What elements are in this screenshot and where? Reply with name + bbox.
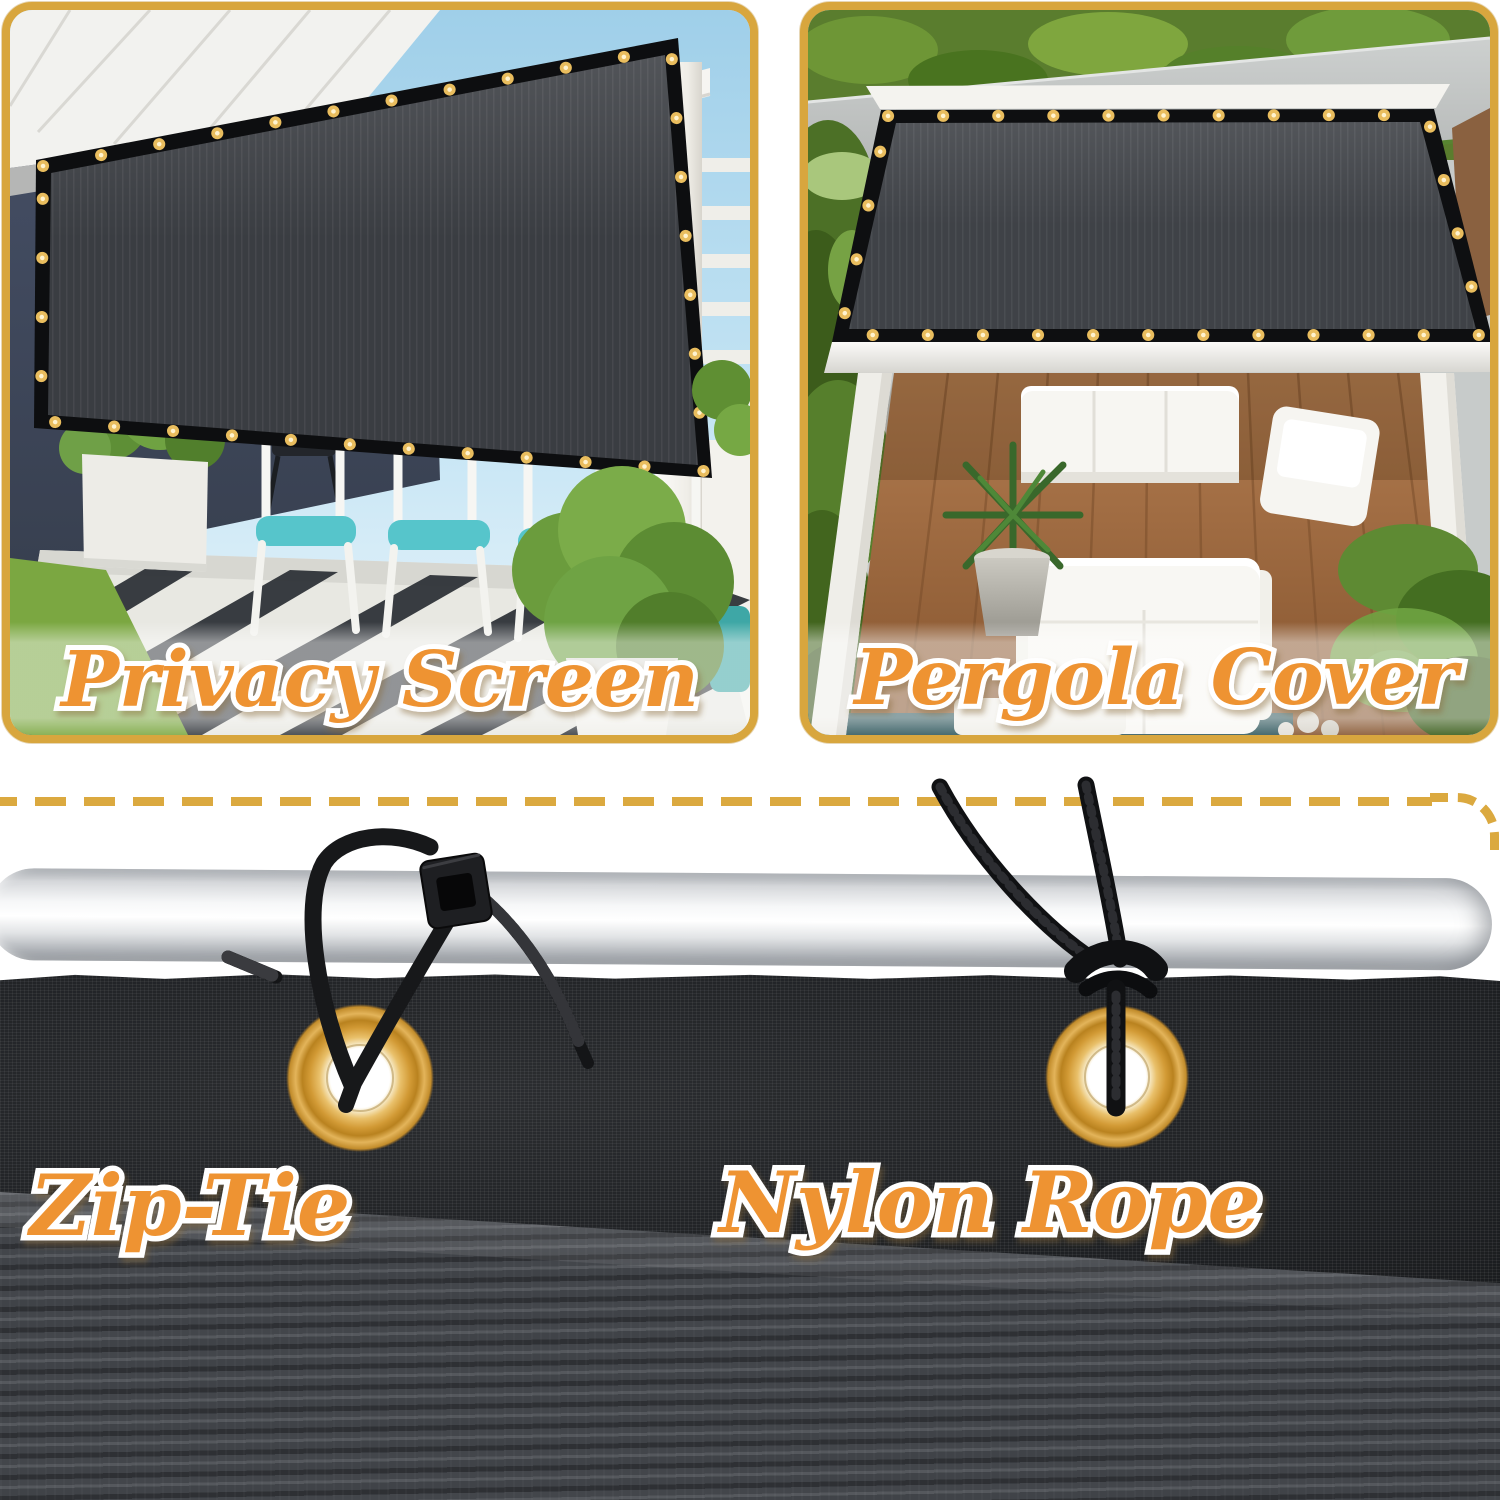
product-feature-collage: Privacy Screen [0, 0, 1500, 1500]
privacy-screen-photo: Privacy Screen [10, 10, 750, 735]
zip-tie-head [419, 852, 493, 929]
zip-tie-label: Zip-Tie [27, 1156, 351, 1255]
panel-privacy-screen: Privacy Screen [2, 2, 758, 743]
privacy-screen-label: Privacy Screen [59, 635, 699, 725]
pergola-cover-label: Pergola Cover [852, 633, 1463, 723]
back-beam [866, 84, 1450, 109]
pergola-cover-mesh [832, 109, 1490, 342]
hardware-overlay: Zip-Tie Nylon Rope [0, 745, 1500, 1500]
pergola-cover-photo: Pergola Cover [808, 10, 1490, 735]
panel-pergola-cover: Pergola Cover [800, 2, 1498, 743]
front-beam [824, 342, 1490, 373]
nylon-rope-label: Nylon Rope [716, 1153, 1261, 1252]
